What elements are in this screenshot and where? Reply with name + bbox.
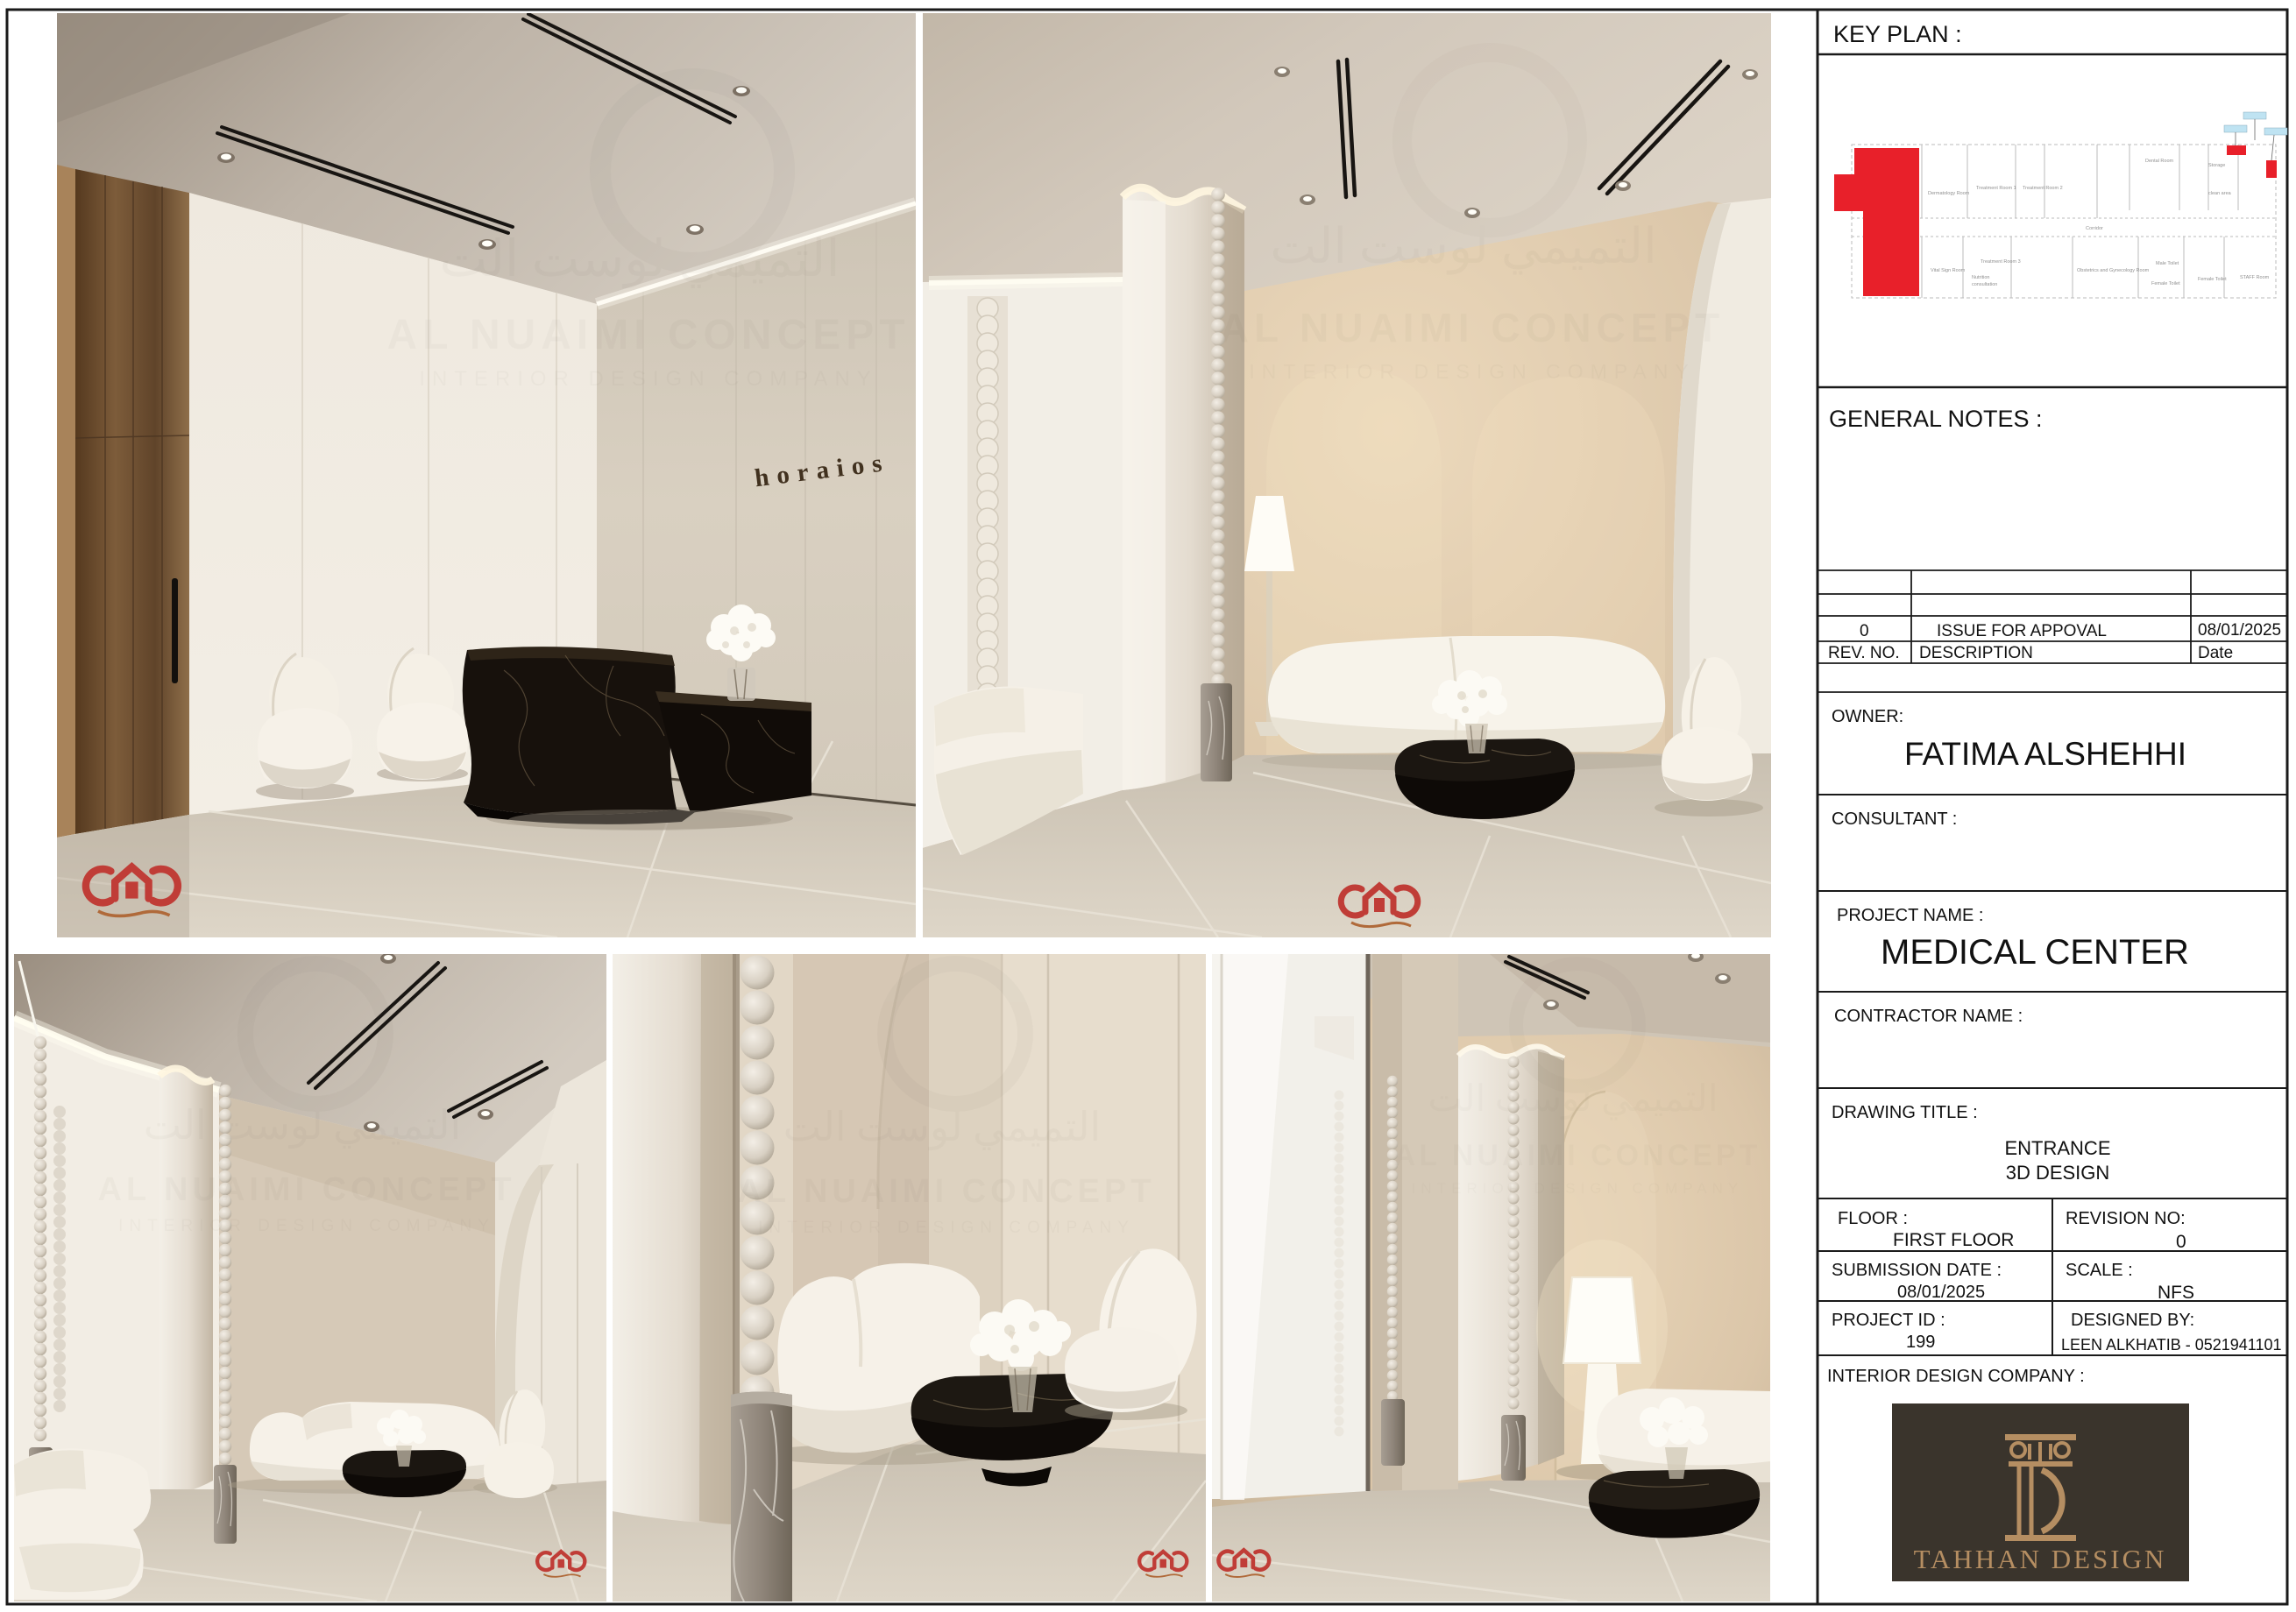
svg-text:CONTRACTOR NAME :: CONTRACTOR NAME : xyxy=(1834,1007,2023,1026)
svg-text:CONSULTANT :: CONSULTANT : xyxy=(1832,810,1957,829)
svg-text:Corridor: Corridor xyxy=(2086,226,2103,231)
svg-text:08/01/2025: 08/01/2025 xyxy=(2198,621,2281,640)
svg-text:INTERIOR DESIGN COMPANY :: INTERIOR DESIGN COMPANY : xyxy=(1827,1367,2085,1386)
svg-text:Female Toilet: Female Toilet xyxy=(2198,277,2227,282)
svg-text:AL NUAIMI CONCEPT: AL NUAIMI CONCEPT xyxy=(1220,305,1726,350)
svg-text:REV. NO.: REV. NO. xyxy=(1828,644,1900,662)
svg-text:3D DESIGN: 3D DESIGN xyxy=(2006,1162,2110,1184)
svg-text:INTERIOR DESIGN COMPANY: INTERIOR DESIGN COMPANY xyxy=(758,1219,1135,1237)
svg-text:INTERIOR DESIGN COMPANY: INTERIOR DESIGN COMPANY xyxy=(1249,360,1695,383)
svg-text:Treatment Room 1: Treatment Room 1 xyxy=(1976,186,2016,191)
svg-text:FIRST FLOOR: FIRST FLOOR xyxy=(1893,1230,2014,1250)
svg-text:clean area: clean area xyxy=(2208,191,2232,196)
svg-text:08/01/2025: 08/01/2025 xyxy=(1897,1283,1985,1302)
svg-text:SCALE :: SCALE : xyxy=(2066,1261,2133,1280)
svg-text:NFS: NFS xyxy=(2158,1283,2194,1303)
svg-text:AL NUAIMI CONCEPT: AL NUAIMI CONCEPT xyxy=(386,312,910,358)
svg-text:AL NUAIMI CONCEPT: AL NUAIMI CONCEPT xyxy=(98,1171,516,1208)
svg-text:0: 0 xyxy=(1860,622,1869,640)
svg-text:FATIMA ALSHEHHI: FATIMA ALSHEHHI xyxy=(1904,736,2186,772)
svg-text:INTERIOR DESIGN COMPANY: INTERIOR DESIGN COMPANY xyxy=(419,367,878,391)
svg-text:Female Toilet: Female Toilet xyxy=(2151,281,2180,286)
svg-text:FLOOR :: FLOOR : xyxy=(1838,1209,1908,1228)
svg-text:TAHHAN DESIGN: TAHHAN DESIGN xyxy=(1914,1544,2167,1574)
svg-text:Vital Sign Room: Vital Sign Room xyxy=(1931,268,1966,273)
svg-text:Obstetrics and Gynecology Room: Obstetrics and Gynecology Room xyxy=(2077,268,2150,273)
svg-text:0: 0 xyxy=(2176,1232,2186,1252)
svg-text:التميمي لوست الت: التميمي لوست الت xyxy=(439,230,840,289)
svg-text:Treatment Room 3: Treatment Room 3 xyxy=(1981,259,2021,265)
svg-text:Dermatology Room: Dermatology Room xyxy=(1928,191,1970,196)
svg-text:LEEN ALKHATIB - 0521941101: LEEN ALKHATIB - 0521941101 xyxy=(2061,1336,2282,1354)
svg-text:KEY PLAN :: KEY PLAN : xyxy=(1833,21,1962,47)
svg-text:Dental Room: Dental Room xyxy=(2145,159,2174,164)
svg-text:STAFF Room: STAFF Room xyxy=(2240,275,2270,280)
svg-text:199: 199 xyxy=(1906,1333,1935,1352)
svg-text:التميمي لوست الت: التميمي لوست الت xyxy=(1428,1079,1718,1121)
svg-text:REVISION NO:: REVISION NO: xyxy=(2066,1209,2186,1228)
svg-text:Nutrition: Nutrition xyxy=(1972,275,1989,280)
svg-text:DRAWING TITLE :: DRAWING TITLE : xyxy=(1832,1103,1978,1122)
svg-text:DESIGNED BY:: DESIGNED BY: xyxy=(2071,1311,2194,1330)
svg-text:MEDICAL CENTER: MEDICAL CENTER xyxy=(1881,933,2189,972)
svg-text:Storage: Storage xyxy=(2208,163,2225,168)
svg-text:AL NUAIMI CONCEPT: AL NUAIMI CONCEPT xyxy=(738,1173,1156,1210)
svg-text:Date: Date xyxy=(2198,644,2233,662)
svg-text:Male Toilet: Male Toilet xyxy=(2156,261,2179,266)
svg-text:التميمي لوست الت: التميمي لوست الت xyxy=(1270,220,1656,275)
svg-text:DESCRIPTION: DESCRIPTION xyxy=(1919,644,2033,662)
svg-text:التميمي لوست الت: التميمي لوست الت xyxy=(144,1103,462,1149)
svg-text:ENTRANCE: ENTRANCE xyxy=(2004,1137,2110,1159)
svg-text:INTERIOR DESIGN COMPANY: INTERIOR DESIGN COMPANY xyxy=(1412,1180,1744,1197)
svg-text:PROJECT ID :: PROJECT ID : xyxy=(1832,1311,1945,1330)
svg-text:PROJECT NAME :: PROJECT NAME : xyxy=(1837,906,1983,925)
svg-text:GENERAL NOTES :: GENERAL NOTES : xyxy=(1829,406,2043,432)
svg-text:التميمي لوست الت: التميمي لوست الت xyxy=(783,1105,1102,1151)
svg-text:consultation: consultation xyxy=(1972,282,1997,287)
svg-text:SUBMISSION DATE :: SUBMISSION DATE : xyxy=(1832,1261,2002,1280)
svg-text:ISSUE FOR APPOVAL: ISSUE FOR APPOVAL xyxy=(1937,622,2107,640)
svg-text:AL NUAIMI CONCEPT: AL NUAIMI CONCEPT xyxy=(1394,1139,1761,1172)
svg-text:Treatment Room 2: Treatment Room 2 xyxy=(2023,186,2063,191)
svg-text:OWNER:: OWNER: xyxy=(1832,707,1903,726)
svg-text:INTERIOR DESIGN COMPANY: INTERIOR DESIGN COMPANY xyxy=(118,1217,495,1235)
